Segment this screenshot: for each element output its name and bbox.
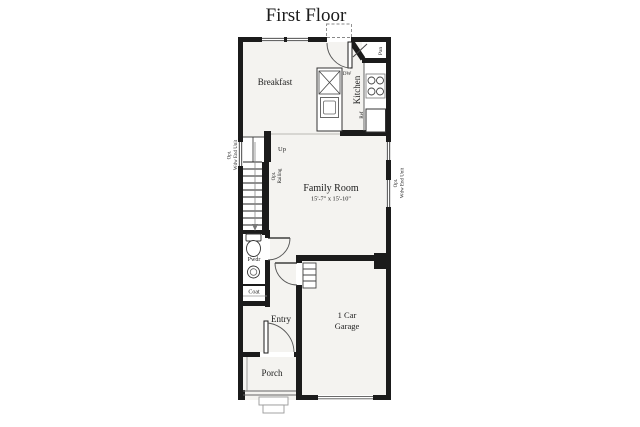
label-opt-window-right-2: Wdw End Unit bbox=[400, 167, 405, 198]
front-door-leaf bbox=[264, 321, 268, 353]
room-label-pantry: Pan bbox=[378, 47, 384, 56]
powder-door-opening bbox=[265, 238, 270, 260]
top-window-2 bbox=[287, 37, 308, 42]
wall-pantry-bottom bbox=[362, 58, 391, 63]
porch-step-1 bbox=[259, 397, 288, 405]
floor-plan: First Floor Breakfast Kitchen Pan DW Ref… bbox=[0, 0, 640, 427]
garage-entry-door-opening bbox=[296, 263, 302, 285]
powder-sink bbox=[248, 266, 260, 278]
wall-left bbox=[238, 37, 243, 400]
wall-coat-bottom bbox=[243, 301, 270, 306]
room-label-kitchen: Kitchen bbox=[352, 75, 362, 104]
right-window-2 bbox=[386, 180, 391, 207]
label-opt-railing-2: Railing bbox=[278, 168, 283, 183]
room-label-family: Family Room bbox=[303, 183, 359, 194]
wall-top bbox=[238, 37, 391, 42]
label-opt-window-left-2: Wdw End Unit bbox=[234, 139, 239, 170]
wall-landing-right bbox=[264, 131, 271, 162]
label-refrigerator: Ref bbox=[360, 111, 365, 119]
room-label-garage-2: Garage bbox=[335, 321, 360, 331]
wall-garage-bottom-left bbox=[296, 395, 318, 400]
wall-right bbox=[386, 37, 391, 400]
label-opt-window-left-1: Opt. bbox=[227, 151, 232, 160]
porch-step-2 bbox=[263, 405, 284, 413]
wall-entry-bottom-left bbox=[238, 352, 260, 357]
wall-stair-right bbox=[262, 162, 269, 235]
page-title: First Floor bbox=[266, 5, 347, 26]
label-opt-railing-1: Opt. bbox=[272, 172, 277, 181]
wall-junction-block bbox=[374, 253, 391, 269]
label-up: Up bbox=[278, 146, 286, 153]
room-dims-family: 15'-7" x 15'-10" bbox=[311, 196, 351, 203]
refrigerator bbox=[366, 109, 386, 132]
room-label-powder: Pwdr bbox=[248, 257, 261, 263]
garage-steps bbox=[303, 263, 316, 288]
room-label-entry: Entry bbox=[271, 314, 291, 324]
top-window-1 bbox=[262, 37, 284, 42]
room-label-garage-1: 1 Car bbox=[338, 310, 357, 320]
room-label-porch: Porch bbox=[262, 368, 283, 378]
wall-garage-bottom-right bbox=[373, 395, 391, 400]
wall-powder-coat-divider bbox=[243, 284, 267, 286]
left-window bbox=[238, 142, 243, 166]
label-dishwasher: DW bbox=[343, 72, 352, 77]
toilet-tank bbox=[246, 234, 261, 241]
floor-plan-page: { "title": "First Floor", "rooms": { "br… bbox=[0, 0, 640, 427]
toilet-bowl bbox=[247, 241, 261, 257]
right-window-1 bbox=[386, 142, 391, 160]
room-label-coat: Coat bbox=[248, 290, 260, 296]
rear-door-leaf bbox=[348, 42, 352, 68]
label-opt-window-right-1: Opt. bbox=[394, 179, 399, 188]
room-label-breakfast: Breakfast bbox=[258, 77, 293, 87]
